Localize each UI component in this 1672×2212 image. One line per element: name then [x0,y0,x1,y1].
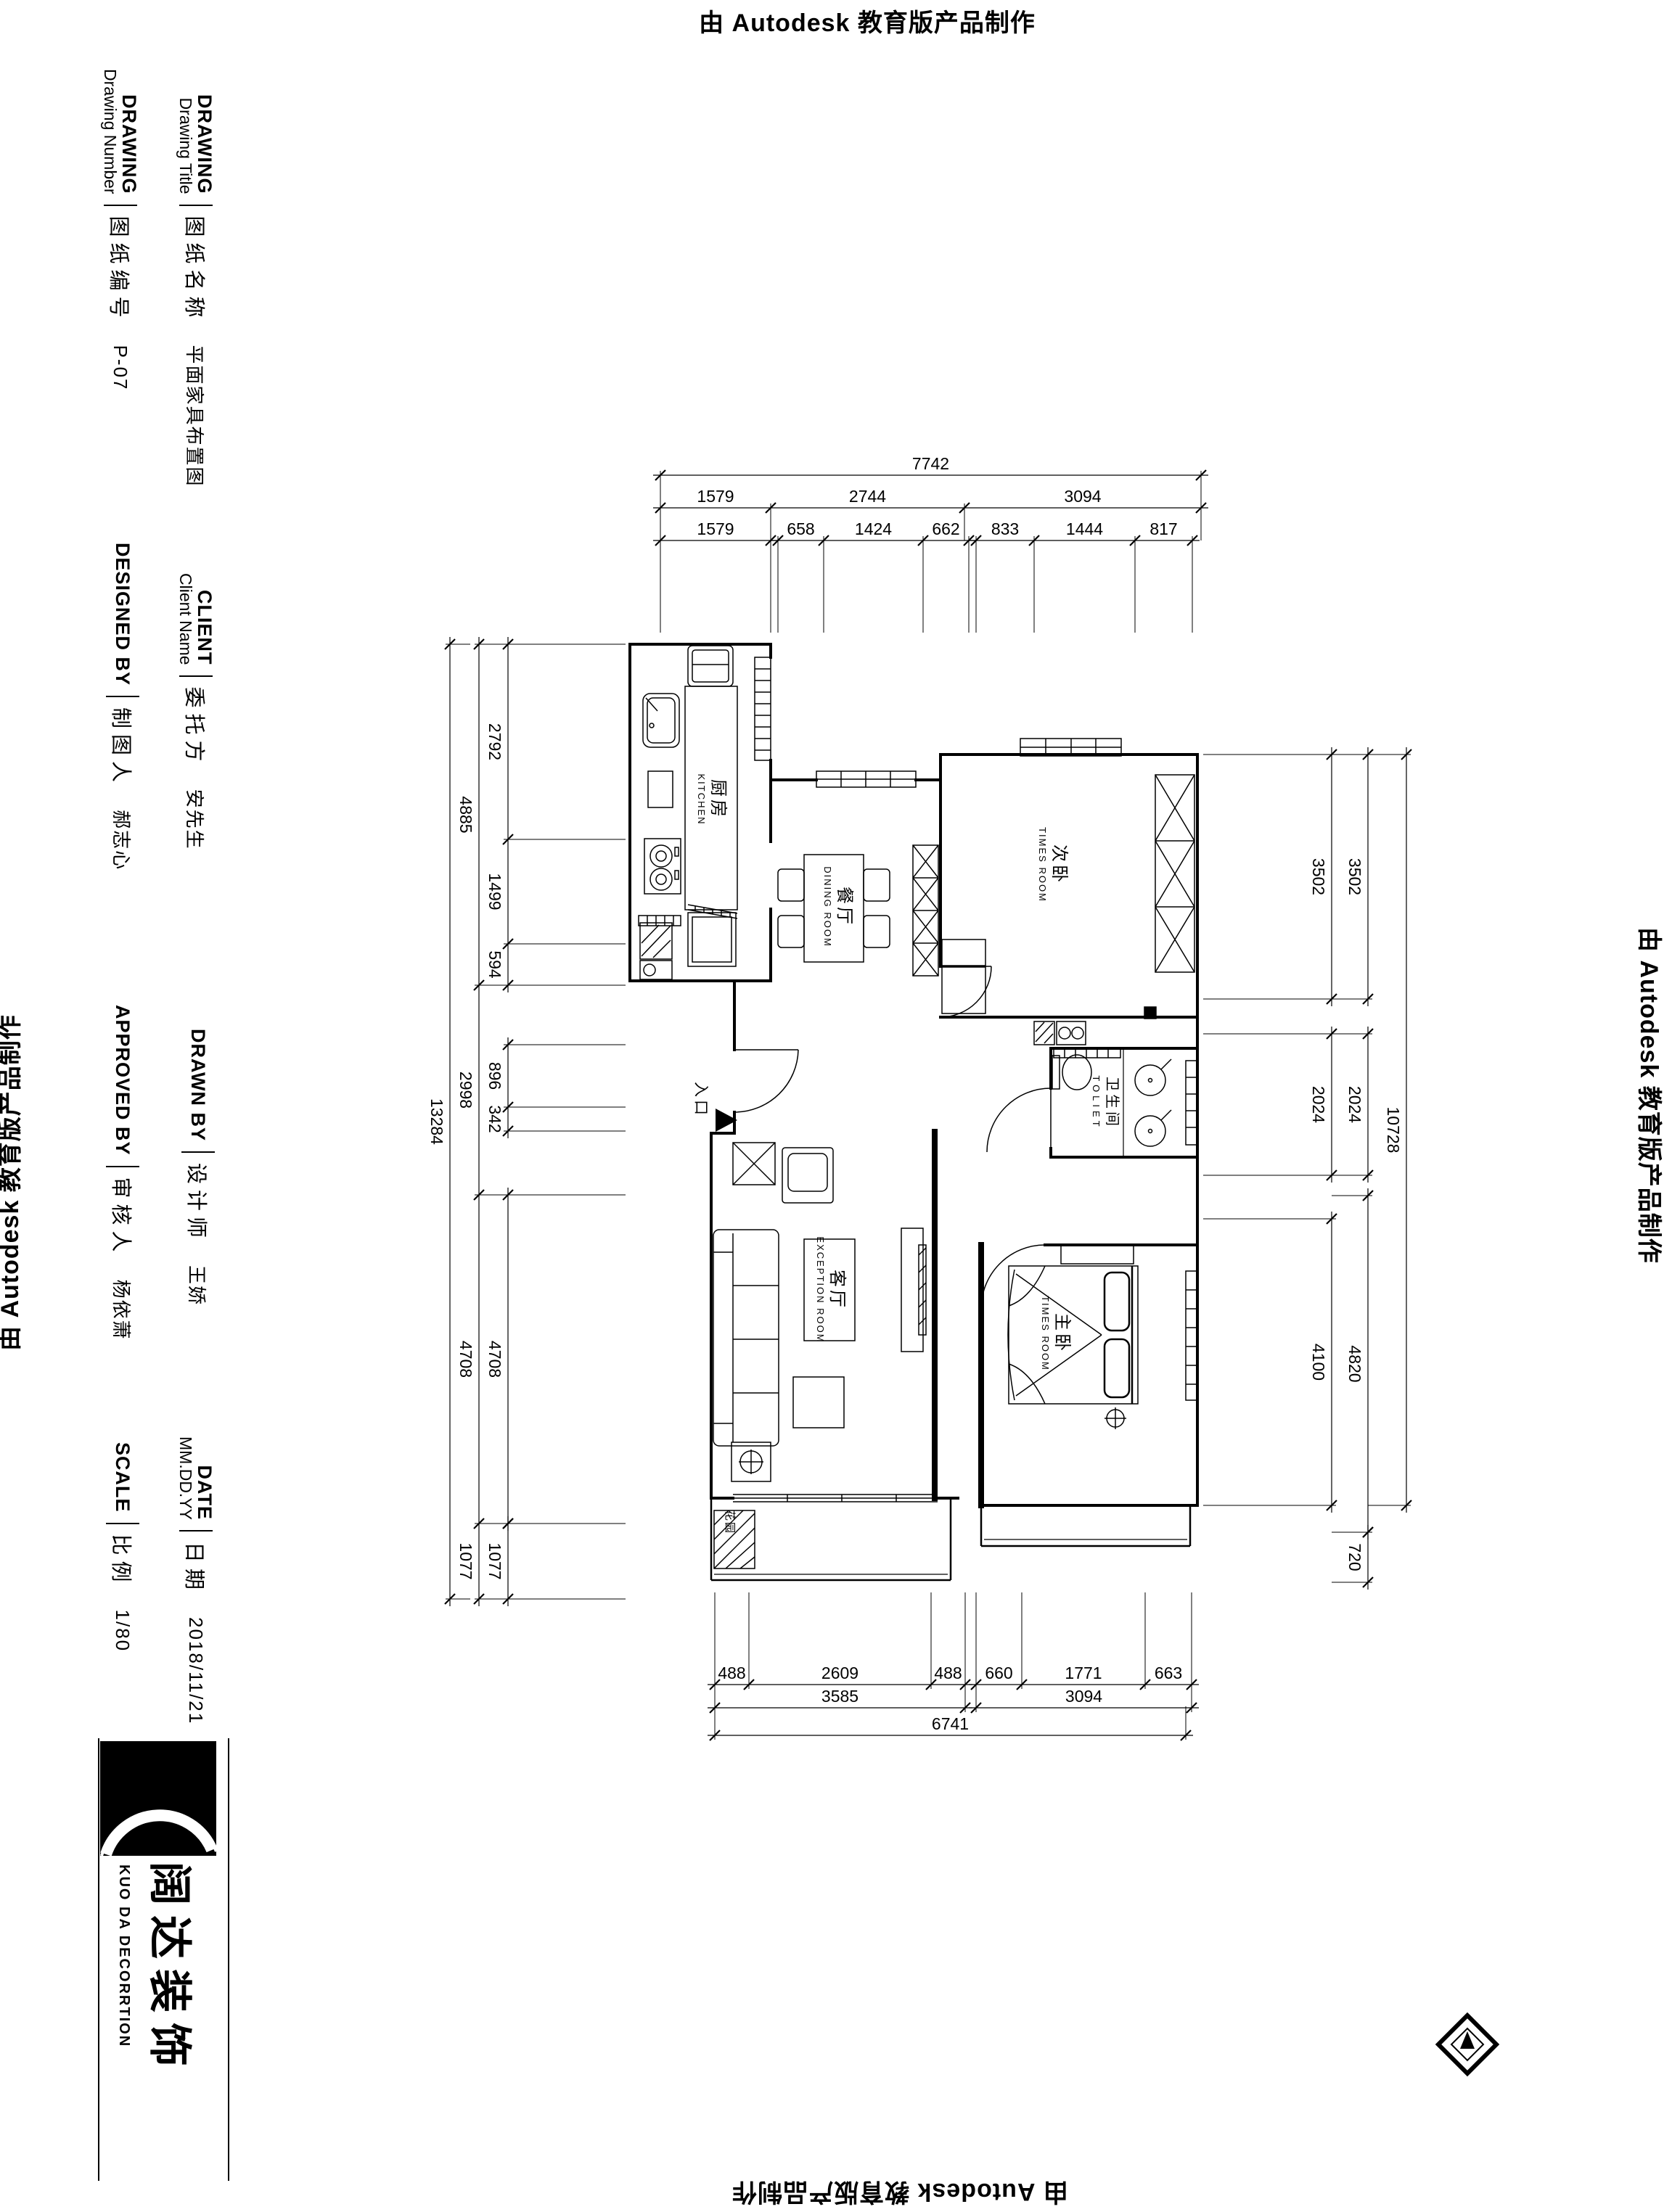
dim-label: 2024 [1309,1086,1328,1123]
room-label-bedroom2: 次卧 TIMES ROOM [1037,827,1069,903]
room-zh: 卫生间 [1104,1077,1120,1129]
tb-separator [106,696,139,697]
dim-label: 896 [485,1062,504,1090]
tb-value: 2018/11/21 [184,1617,207,1724]
compass-icon [1438,2015,1496,2073]
dim-label: 660 [985,1664,1012,1682]
svg-text:入口: 入口 [692,1082,709,1118]
dim-label: 6741 [932,1714,969,1733]
floor-plan-drawing: 厨房 KITCHEN 餐厅 DINING ROOM 次卧 TIMES ROOM … [0,0,1672,2203]
tb-value: P-07 [109,345,131,391]
logo-border-right [228,1738,229,2181]
titleblock-client: CLIENTClient Name 委托方 安先生 [177,573,215,850]
tb-separator [179,205,213,206]
tb-en-main: APPROVED BY [112,1005,133,1156]
tb-value: 平面家具布置图 [182,345,209,488]
room-zh: 厨房 [708,779,728,820]
room-label-dining: 餐厅 DINING ROOM [822,866,854,947]
tb-separator [181,1151,215,1153]
company-logo-icon [100,1741,216,1856]
dim-label: 1579 [697,487,734,506]
room-zh: 餐厅 [835,887,854,927]
autodesk-stamp-bottom: 由 Autodesk 教育版产品制作 [697,2176,1103,2212]
tb-zh: 日期 [181,1542,211,1595]
tb-en-main: DRAWING [194,94,215,194]
dim-label: 658 [787,519,814,538]
dim-label: 662 [932,519,959,538]
room-label-toilet: 卫生间 TOLIET [1091,1075,1120,1130]
windows [639,657,1197,1400]
dim-label: 1771 [1065,1664,1102,1682]
logo-border-left [98,1738,99,2181]
dim-label: 4820 [1345,1345,1364,1382]
dim-label: 1077 [485,1542,504,1579]
tb-separator [104,205,137,206]
titleblock-scale: SCALE 比例 1/80 [106,1442,139,1652]
tb-en-sub: Client Name [177,573,194,665]
tb-zh: 图纸编号 [105,216,136,324]
titleblock-designed-by: DESIGNED BY 制图人 郝志心 [106,543,139,871]
tb-separator [179,675,213,677]
master-furniture [1008,1245,1138,1429]
room-zh: 客厅 [827,1270,847,1310]
tb-zh: 比例 [107,1534,138,1588]
titleblock-drawing-number: DRAWINGDrawing Number 图纸编号 P-07 [102,69,139,391]
dim-label: 4100 [1309,1344,1328,1381]
autodesk-stamp-left: 由 Autodesk 教育版产品制作 [0,1014,25,1351]
tb-zh: 图纸名称 [181,216,211,324]
tb-zh: 制图人 [107,707,138,788]
dim-label: 1499 [485,873,504,910]
dim-label: 3094 [1064,487,1101,506]
dim-label: 1579 [697,519,734,538]
tb-zh: 设计师 [183,1163,213,1243]
dim-label: 342 [485,1105,504,1132]
tb-value: 1/80 [112,1610,134,1653]
room-label-living: 客厅 EXCEPTION ROOM [815,1236,847,1343]
bedroom2-furniture [913,775,1194,1014]
dim-label: 7742 [912,454,949,473]
toilet-fixtures [1034,1007,1171,1157]
room-en: TIMES ROOM [1040,1296,1051,1371]
company-name-en: KUO DA DECORRTION [115,1864,132,2047]
dim-label: 2024 [1345,1086,1364,1123]
tb-value: 王娇 [185,1265,212,1306]
balcony [711,1494,1190,1580]
dim-label: 594 [485,950,504,979]
dim-label: 3094 [1065,1687,1102,1706]
dim-label: 1444 [1066,519,1103,538]
tb-separator [106,1166,139,1167]
dimension-layer: 7742157927443094157965814246628331444817… [427,454,1411,1740]
tb-separator [179,1530,213,1531]
tb-en-main: CLIENT [194,590,215,665]
autodesk-stamp-top: 由 Autodesk 教育版产品制作 [657,3,1078,38]
dim-label: 817 [1149,519,1177,538]
tb-en-main: DRAWING [119,94,139,194]
dim-label: 2609 [821,1664,858,1682]
tb-en-main: DATE [194,1465,215,1521]
room-zh: 主卧 [1052,1313,1072,1354]
tb-zh: 委托方 [181,687,211,768]
room-en: TIMES ROOM [1037,827,1048,903]
room-label-kitchen: 厨房 KITCHEN [696,773,728,825]
room-labels: 厨房 KITCHEN 餐厅 DINING ROOM 次卧 TIMES ROOM … [692,773,1120,1534]
entrance-label: 入口 [692,1082,709,1118]
tb-en-main: DRAWN BY [188,1029,208,1141]
dim-label: 488 [718,1664,745,1682]
walls [630,644,1197,1505]
dim-label: 4708 [485,1341,504,1378]
tb-en-sub: Drawing Number [102,69,119,194]
dim-label: 1077 [456,1542,475,1579]
dim-label: 1424 [855,519,892,538]
dim-label: 3502 [1345,858,1364,895]
room-en: KITCHEN [696,773,707,825]
tb-value: 杨依萧 [110,1280,136,1341]
company-name-zh: 阔达装饰 [142,1862,205,2076]
dim-label: 13284 [427,1098,446,1145]
dim-label: 2744 [849,487,886,506]
svg-text:花园: 花园 [724,1510,736,1534]
tb-en-main: SCALE [112,1442,133,1513]
room-en: EXCEPTION ROOM [815,1236,826,1343]
tb-zh: 审核人 [107,1177,138,1258]
room-en: DINING ROOM [822,866,833,947]
titleblock-drawn-by: DRAWN BY 设计师 王娇 [181,1029,215,1306]
room-zh: 次卧 [1049,844,1069,885]
autodesk-stamp-right: 由 Autodesk 教育版产品制作 [1634,927,1669,1264]
tb-value: 安先生 [182,789,209,850]
tb-value: 郝志心 [110,810,136,871]
dining-furniture [778,855,890,962]
dim-label: 3585 [821,1687,858,1706]
titleblock-drawing-title: DRAWINGDrawing Title 图纸名称 平面家具布置图 [177,94,215,488]
garden-label: 花园 [724,1510,736,1534]
dim-label: 10728 [1384,1107,1403,1154]
room-en: TOLIET [1091,1075,1102,1130]
titleblock-approved-by: APPROVED BY 审核人 杨依萧 [106,1005,139,1341]
dim-label: 2792 [485,723,504,760]
tb-en-sub: MM.DD.YY [177,1436,194,1520]
dim-label: 720 [1345,1543,1364,1571]
dim-label: 833 [991,519,1019,538]
dim-label: 663 [1155,1664,1182,1682]
dim-label: 488 [934,1664,962,1682]
dim-label: 2998 [456,1072,475,1109]
dim-label: 4885 [456,796,475,833]
tb-separator [106,1523,139,1524]
dim-label: 3502 [1309,858,1328,895]
tb-en-main: DESIGNED BY [112,543,133,686]
titleblock-date: DATEMM.DD.YY 日期 2018/11/21 [177,1436,215,1724]
tb-en-sub: Drawing Title [177,98,194,194]
dim-label: 4708 [456,1341,475,1378]
